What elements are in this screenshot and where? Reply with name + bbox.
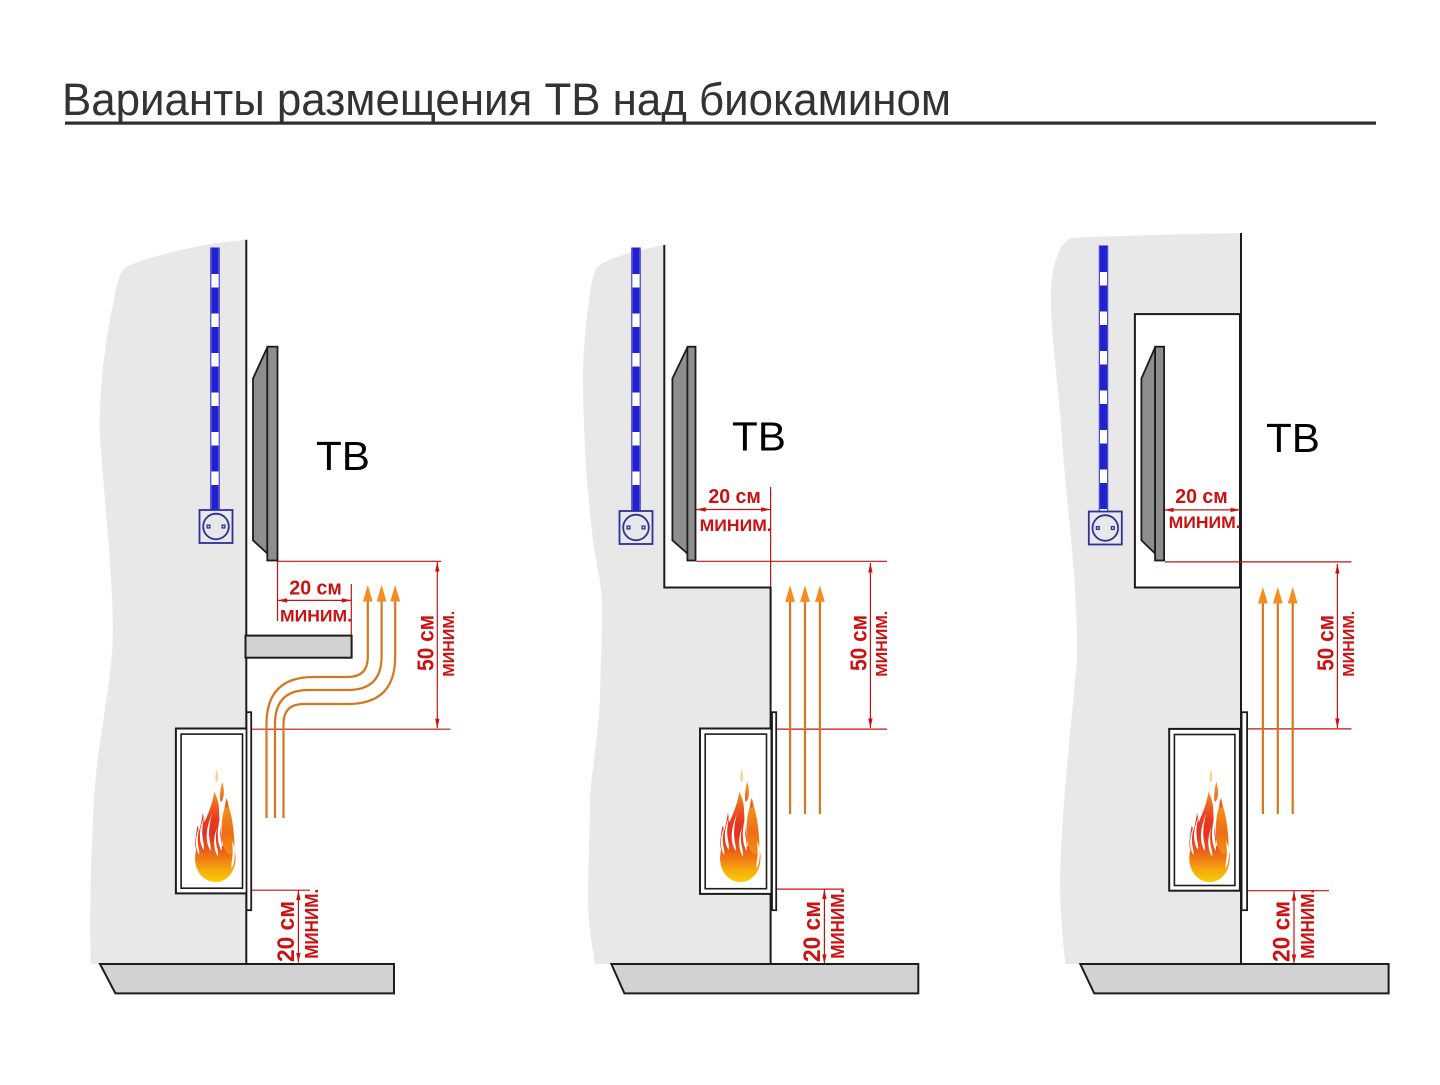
svg-text:20 см: 20 см [273,901,300,962]
svg-text:50 см: 50 см [845,615,871,671]
svg-text:МИНИМ.: МИНИМ. [1341,611,1358,677]
svg-text:МИНИМ.: МИНИМ. [874,611,891,677]
svg-text:МИНИМ.: МИНИМ. [828,889,848,959]
svg-text:Варианты размещения ТВ над био: Варианты размещения ТВ над биокамином [62,74,951,125]
svg-text:МИНИМ.: МИНИМ. [302,889,322,959]
svg-text:20 см: 20 см [708,486,761,508]
svg-text:МИНИМ.: МИНИМ. [700,516,772,535]
svg-text:50 см: 50 см [1312,615,1338,671]
svg-text:ТВ: ТВ [1266,415,1320,461]
svg-text:МИНИМ.: МИНИМ. [280,606,352,625]
svg-text:20 см: 20 см [1175,486,1228,508]
svg-text:ТВ: ТВ [316,433,370,479]
svg-text:ТВ: ТВ [732,414,786,460]
svg-text:МИНИМ.: МИНИМ. [1169,513,1241,532]
svg-text:МИНИМ.: МИНИМ. [441,611,458,677]
svg-text:МИНИМ.: МИНИМ. [1298,889,1318,959]
svg-text:20 см: 20 см [1269,901,1296,962]
svg-text:20 см: 20 см [799,901,826,962]
svg-text:50 см: 50 см [412,615,438,671]
svg-text:20 см: 20 см [289,578,342,600]
